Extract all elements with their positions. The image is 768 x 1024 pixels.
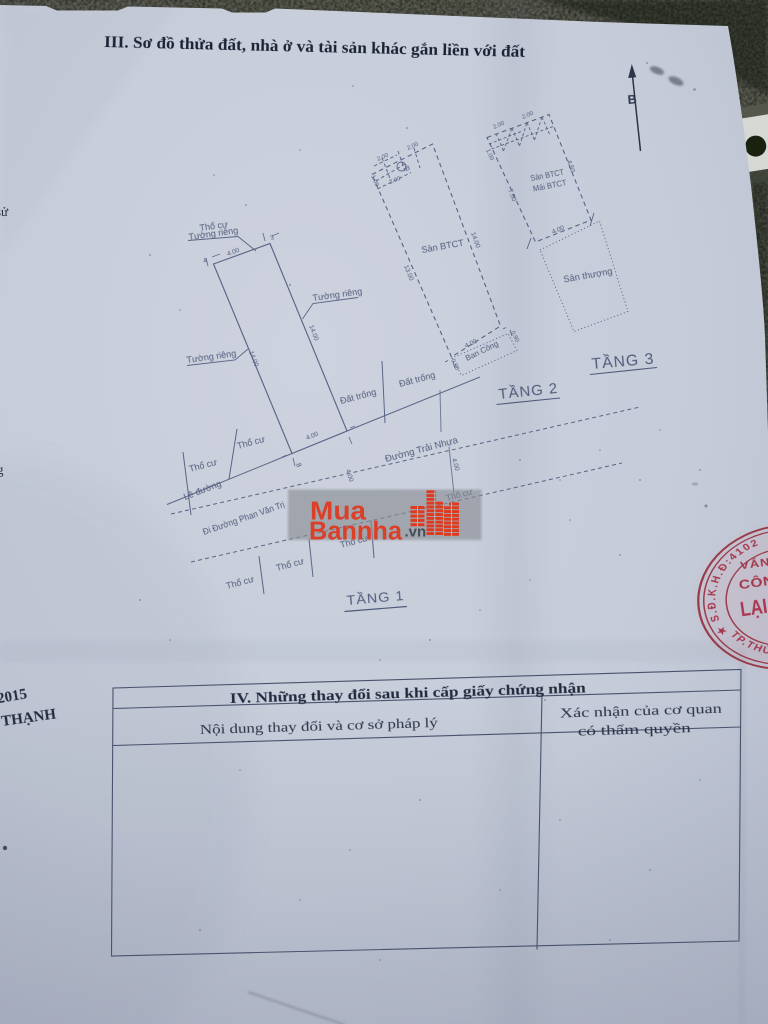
svg-text:B: B [627,92,637,107]
svg-text:ng: ng [0,462,4,477]
svg-text:Bannha: Bannha [309,516,403,546]
svg-text:sử: sử [0,204,9,219]
